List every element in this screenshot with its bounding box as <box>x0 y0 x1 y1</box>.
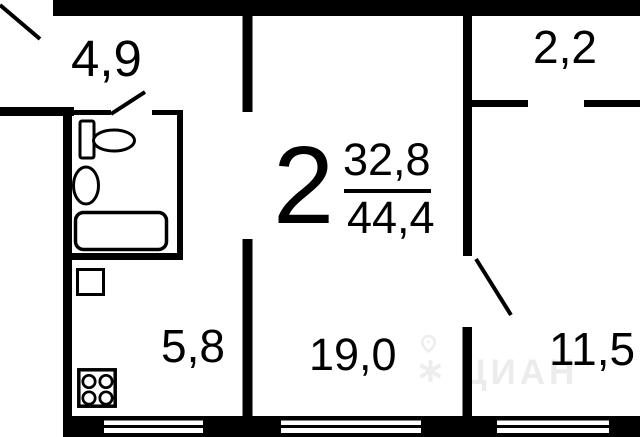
svg-text:2: 2 <box>273 124 334 247</box>
svg-text:2,2: 2,2 <box>533 21 597 73</box>
svg-text:19,0: 19,0 <box>309 329 397 380</box>
svg-text:4,9: 4,9 <box>71 30 142 87</box>
svg-text:32,8: 32,8 <box>343 134 431 185</box>
svg-text:11,5: 11,5 <box>549 323 635 375</box>
svg-text:44,4: 44,4 <box>347 192 435 243</box>
svg-text:5,8: 5,8 <box>161 320 225 372</box>
